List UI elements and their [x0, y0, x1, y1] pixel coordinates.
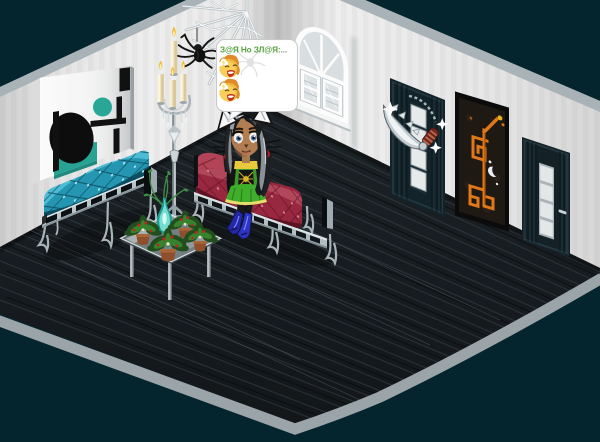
svg-text:З@Я Но ЗЛ@Я:...: З@Я Но ЗЛ@Я:... — [220, 46, 287, 55]
